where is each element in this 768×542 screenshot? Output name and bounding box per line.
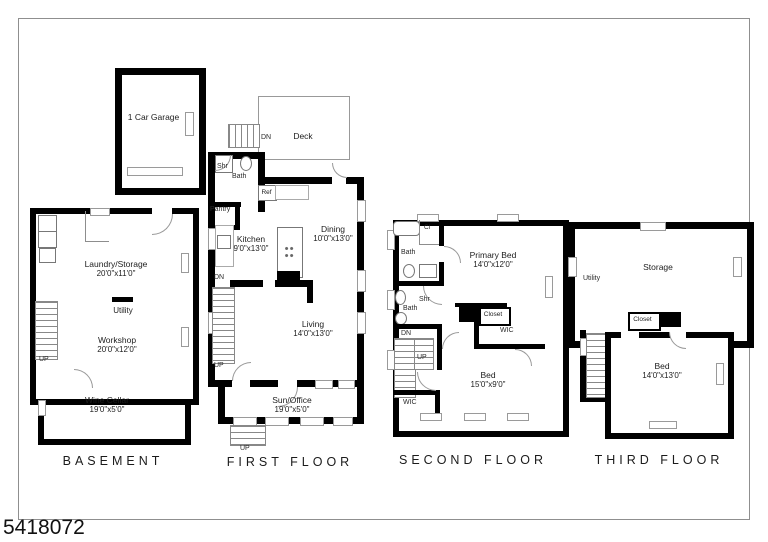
room-label-sun-office: Sun/Office 19'0"x5'0" <box>261 395 323 415</box>
room-name: Storage <box>623 262 693 272</box>
cl-label: Cl <box>424 224 430 231</box>
room-name: Deck <box>258 131 348 141</box>
room-label-bed2: Bed 15'0"x9'0" <box>459 370 517 390</box>
room-label-kitchen: Kitchen 9'0"x13'0" <box>225 234 277 254</box>
window <box>640 222 666 231</box>
room-name: Living <box>285 319 341 329</box>
floorplan-document: 1 Car Garage Utility UP Laundry/Storage <box>0 0 768 542</box>
bed-room-walls: Bed 14'0"x13'0" <box>605 332 734 439</box>
window <box>90 208 110 216</box>
stairs-dn-label: DN <box>214 274 224 281</box>
room-name: Bed <box>459 370 517 380</box>
stairs-up-label: UP <box>417 354 427 361</box>
wall <box>250 380 278 387</box>
wall <box>258 177 332 184</box>
room-dims: 15'0"x9'0" <box>459 380 517 390</box>
window <box>545 276 553 298</box>
room-dims: 19'0"x5'0" <box>74 405 140 415</box>
room-dims: 14'0"x13'0" <box>285 329 341 339</box>
window <box>716 363 724 385</box>
partition-line <box>85 211 86 241</box>
window <box>357 270 366 292</box>
stairs <box>35 301 58 360</box>
window <box>417 214 439 222</box>
room-dims: 14'0"x12'0" <box>463 260 523 270</box>
wall <box>393 324 441 329</box>
utility-label: Utility <box>583 275 600 282</box>
toilet-icon <box>395 290 406 305</box>
vanity-icon <box>419 264 437 278</box>
room-name: Dining <box>305 224 361 234</box>
wall <box>235 207 240 225</box>
door-arc <box>669 332 686 349</box>
partition-line <box>85 241 109 242</box>
stairs-dn-label: DN <box>261 134 271 141</box>
closet-label: Closet <box>628 312 657 327</box>
second-floor-plan: Cl Bath Shr Bath DN UP Closet WIC <box>393 220 557 425</box>
room-name: Workshop <box>85 335 149 345</box>
window <box>568 257 577 277</box>
shr-label: Shr <box>419 296 430 303</box>
room-name: Kitchen <box>225 234 277 244</box>
room-dims: 19'0"x5'0" <box>261 405 323 415</box>
wall <box>307 287 313 303</box>
title-basement: BASEMENT <box>63 454 164 468</box>
title-third-floor: THIRD FLOOR <box>595 453 724 467</box>
window <box>300 417 324 426</box>
room-dims: 20'0"x12'0" <box>85 345 149 355</box>
window <box>497 214 519 222</box>
room-label-utility: Utility <box>108 306 138 316</box>
window <box>38 400 46 416</box>
garage-door-opening <box>127 167 183 176</box>
deck-outline <box>258 96 350 160</box>
room-name: 1 Car Garage <box>122 112 185 122</box>
stairs <box>212 287 235 364</box>
laundry-sink-icon <box>39 248 56 263</box>
room-name: Primary Bed <box>463 250 523 260</box>
title-second-floor: SECOND FLOOR <box>399 453 547 467</box>
wall <box>218 387 225 418</box>
utility-wall <box>112 297 133 302</box>
window <box>333 417 353 426</box>
room-label-primary-bed: Primary Bed 14'0"x12'0" <box>463 250 523 270</box>
window <box>464 413 486 421</box>
washer-icon <box>38 215 57 232</box>
wall <box>208 380 232 387</box>
closet-line <box>419 220 420 244</box>
door-arc <box>232 362 251 381</box>
window <box>265 417 289 426</box>
door-opening <box>621 332 639 338</box>
window <box>357 200 366 222</box>
room-label-dining: Dining 10'0"x13'0" <box>305 224 361 244</box>
stove-icon <box>283 244 295 260</box>
photo-id: 5418072 <box>3 516 85 540</box>
bath-label: Bath <box>232 173 246 180</box>
title-first-floor: FIRST FLOOR <box>227 455 353 469</box>
room-dims: 9'0"x13'0" <box>225 244 277 254</box>
garage-plan: 1 Car Garage <box>115 68 192 181</box>
window <box>357 312 366 334</box>
wall <box>439 220 444 246</box>
counter <box>275 185 309 200</box>
wall <box>435 395 440 413</box>
room-label-deck: Deck <box>258 131 348 141</box>
room-dims: 14'0"x13'0" <box>632 371 692 381</box>
wall <box>230 280 263 287</box>
first-floor-plan: Deck DN Shr Bath Pantry Ref <box>205 140 370 460</box>
room-label-laundry: Laundry/Storage 20'0"x11'0" <box>84 259 148 279</box>
room-name: Sun/Office <box>261 395 323 405</box>
closet-solid <box>459 307 479 322</box>
stairs-up-label: UP <box>214 362 224 369</box>
closet-line <box>419 244 441 245</box>
shr-label: Shr <box>217 163 228 170</box>
wall <box>277 271 300 280</box>
stairs <box>394 338 416 398</box>
bathtub-icon <box>393 221 420 236</box>
room-name: Laundry/Storage <box>84 259 148 269</box>
wic-label: WIC <box>500 327 514 334</box>
bath-label: Bath <box>403 305 417 312</box>
window <box>733 257 742 277</box>
room-label-garage: 1 Car Garage <box>122 112 185 122</box>
pantry-label: Pantry <box>210 206 230 213</box>
window <box>181 253 189 273</box>
wic-label: WIC <box>403 399 417 406</box>
window <box>338 380 355 389</box>
deck-stairs <box>228 124 260 148</box>
window <box>387 290 395 310</box>
garage-side-door <box>185 112 194 136</box>
door-opening <box>74 387 92 394</box>
stairs-dn-label: DN <box>401 330 411 337</box>
room-dims: 10'0"x13'0" <box>305 234 361 244</box>
basement-plan: Utility UP Laundry/Storage 20'0"x11'0" W… <box>28 205 190 435</box>
room-label-storage: Storage <box>623 262 693 272</box>
room-label-workshop: Workshop 20'0"x12'0" <box>85 335 149 355</box>
sink-icon <box>403 264 415 278</box>
ref-label: Ref <box>258 185 275 199</box>
room-name: Utility <box>108 306 138 316</box>
room-dims: 20'0"x11'0" <box>84 269 148 279</box>
window <box>181 327 189 347</box>
window <box>420 413 442 421</box>
window <box>315 380 333 389</box>
third-floor-plan: Storage Utility Closet DN Bed 14'0"x13'0… <box>568 220 743 432</box>
window <box>649 421 677 429</box>
stairs-up-label: UP <box>39 356 49 363</box>
window <box>507 413 529 421</box>
room-name: Bed <box>632 361 692 371</box>
dryer-icon <box>38 231 57 248</box>
stairs-up-label: UP <box>240 445 250 452</box>
room-label-wine-cellar: Wine Cellar 19'0"x5'0" <box>74 395 140 415</box>
room-label-living: Living 14'0"x13'0" <box>285 319 341 339</box>
room-name: Wine Cellar <box>74 395 140 405</box>
storage-walls: Storage Utility Closet <box>568 222 754 348</box>
entry-stairs <box>230 425 266 446</box>
bath-label: Bath <box>401 249 415 256</box>
room-label-bed3: Bed 14'0"x13'0" <box>632 361 692 381</box>
wall <box>474 344 545 349</box>
wall <box>275 280 313 287</box>
closet-label: Closet <box>479 307 507 322</box>
toilet-icon <box>240 156 252 171</box>
door-arc <box>332 163 347 178</box>
